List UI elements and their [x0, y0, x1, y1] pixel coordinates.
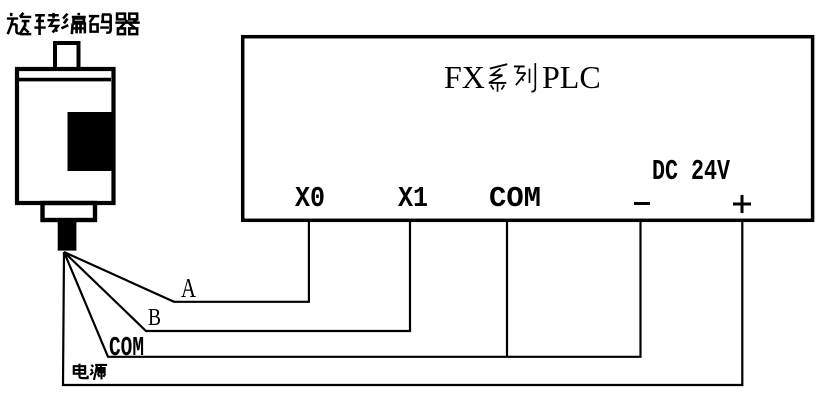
svg-text:X0: X0	[295, 182, 325, 215]
svg-text:COM: COM	[109, 334, 144, 364]
svg-text:PLC: PLC	[542, 59, 601, 95]
svg-text:A: A	[181, 273, 196, 303]
svg-text:DC 24V: DC 24V	[652, 155, 730, 188]
svg-text:X1: X1	[398, 182, 428, 215]
svg-text:B: B	[148, 305, 161, 331]
svg-text:COM: COM	[489, 182, 541, 215]
svg-text:FX: FX	[444, 59, 485, 95]
